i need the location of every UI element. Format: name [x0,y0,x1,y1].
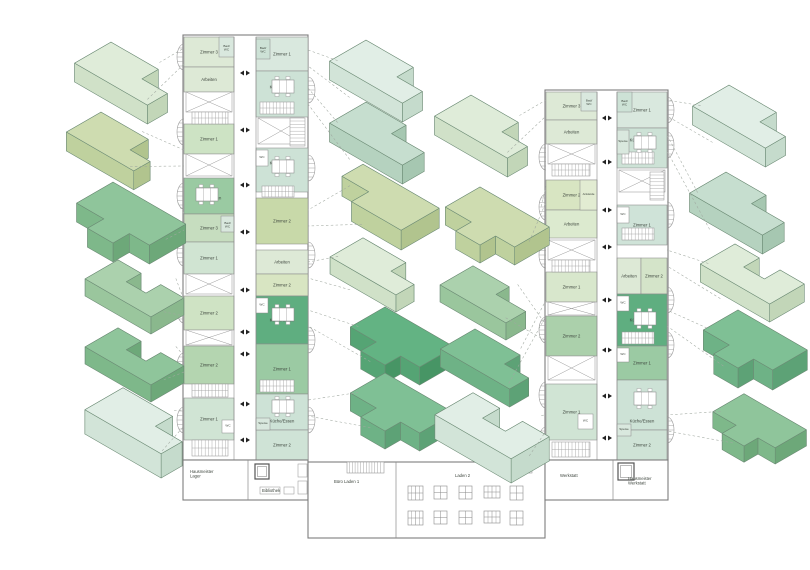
leader-line [667,250,708,264]
room-label: Zimmer 2 [273,283,291,288]
ground-label: Werkstatt [560,473,578,478]
dining-table [272,80,294,93]
room-label: Arbeiten [564,222,580,227]
chair [286,414,290,417]
chair [275,397,279,400]
room-label: Zimmer 1 [633,361,651,366]
dining-table [634,312,656,325]
subroom-label: WC [620,212,626,216]
subroom-label: Bad/WC [224,221,231,228]
room-label: Zimmer 1 [273,367,291,372]
chair [637,326,641,329]
chair [637,389,641,392]
chair [286,174,290,177]
chair [275,94,279,97]
room-label: Zimmer 2 [563,193,581,198]
subroom-label: WC [620,301,626,305]
chair [286,305,290,308]
subroom-label: WC [620,352,626,356]
room-label: Zimmer 1 [633,108,651,113]
dining-table [634,136,656,149]
chair [637,406,641,409]
room-label: Zimmer 3 [200,50,218,55]
room-label: Zimmer 1 [633,223,651,228]
room-label: Zimmer 1 [563,285,581,290]
chair [275,414,279,417]
chair [210,202,214,205]
chair [637,150,641,153]
chair [286,322,290,325]
chair [275,322,279,325]
room-label: Zimmer 1 [273,52,291,57]
ground-label: Büro Laden 1 [334,479,360,484]
dining-table [272,308,294,321]
ground-label: Bibliothek [262,488,281,493]
room-label: Arbeiten [621,274,637,279]
dining-table [196,188,218,201]
room-label: Zimmer 2 [633,443,651,448]
chair [275,157,279,160]
subroom-label: Speise [618,139,628,143]
chair [275,174,279,177]
room-label: Arbeiten [274,260,290,265]
chair [286,397,290,400]
room-label: Zimmer 3 [200,226,218,231]
chair [637,309,641,312]
chair [648,326,652,329]
chair [286,77,290,80]
subroom-label: WC [259,155,265,159]
dining-table [272,160,294,173]
leader-line [159,48,184,63]
room-label: Küche/Essen [630,419,655,424]
leader-line [519,100,546,116]
leader-line [308,88,338,123]
chair [275,77,279,80]
subroom-label: WC [225,424,231,428]
plan-canvas: Zimmer 3ArbeitenZimmer 1Küche/EssenZimme… [0,0,810,570]
entry-steps [347,462,384,473]
subroom-label: Bad/WC [223,44,230,51]
room-label: Zimmer 1 [200,137,218,142]
leader-line [308,224,362,226]
chair [648,309,652,312]
chair [210,185,214,188]
leader-line [667,310,711,330]
floorplan-drawing: Zimmer 3ArbeitenZimmer 1Küche/EssenZimme… [0,0,810,570]
room-label: Zimmer 2 [200,311,218,316]
subroom-label: Bad/WC [586,99,593,106]
dining-table [272,400,294,413]
furniture [284,487,294,494]
room-label: Zimmer 2 [273,219,291,224]
subroom-label: Bad/WC [260,46,267,53]
room-label: Arbeiten [564,130,580,135]
chair [637,133,641,136]
room-label: Zimmer 1 [200,256,218,261]
chair [275,305,279,308]
chair [648,133,652,136]
chair [648,150,652,153]
chair [286,157,290,160]
stair-run [290,118,305,146]
room-label: Zimmer 2 [200,363,218,368]
subroom-label: Speise [258,421,268,425]
furniture [298,464,307,477]
room-label: Zimmer 1 [200,417,218,422]
dining-table [634,392,656,405]
subroom-label: WC [583,419,589,423]
elevator-cab [258,467,267,477]
subroom-label: Bad/WC [621,99,628,106]
room-label: Arbeiten [201,77,217,82]
room-label: Küche/Essen [270,419,295,424]
stair-run [650,172,664,200]
room-label: Zimmer 2 [273,443,291,448]
chair [199,202,203,205]
chair [648,389,652,392]
leader-line [667,135,698,193]
chair [286,94,290,97]
chair [199,185,203,188]
room-label: Zimmer 2 [645,274,663,279]
subroom-label: Speise [619,427,629,431]
subroom-label: Ankleide [583,192,595,196]
chair [648,406,652,409]
leader-line [308,310,358,327]
leader-line [667,100,701,106]
ground-label: Laden 2 [455,473,471,478]
furniture [298,481,307,494]
room-label: Zimmer 3 [563,104,581,109]
leader-line [308,186,350,210]
room-label: Zimmer 2 [563,334,581,339]
subroom-label: WC [259,303,265,307]
